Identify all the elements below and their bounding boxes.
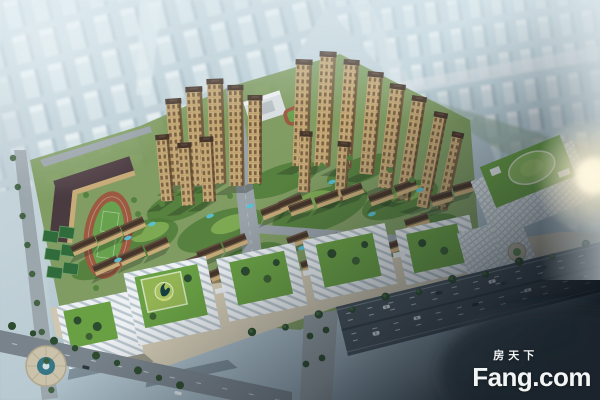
atmosphere [0, 0, 600, 400]
watermark: 房天下 Fang.com [472, 351, 591, 390]
watermark-cn: 房天下 [493, 351, 591, 362]
rendering-canvas [0, 0, 600, 400]
watermark-en: Fang.com [472, 364, 591, 390]
aerial-rendering: 房天下 Fang.com [0, 0, 600, 400]
